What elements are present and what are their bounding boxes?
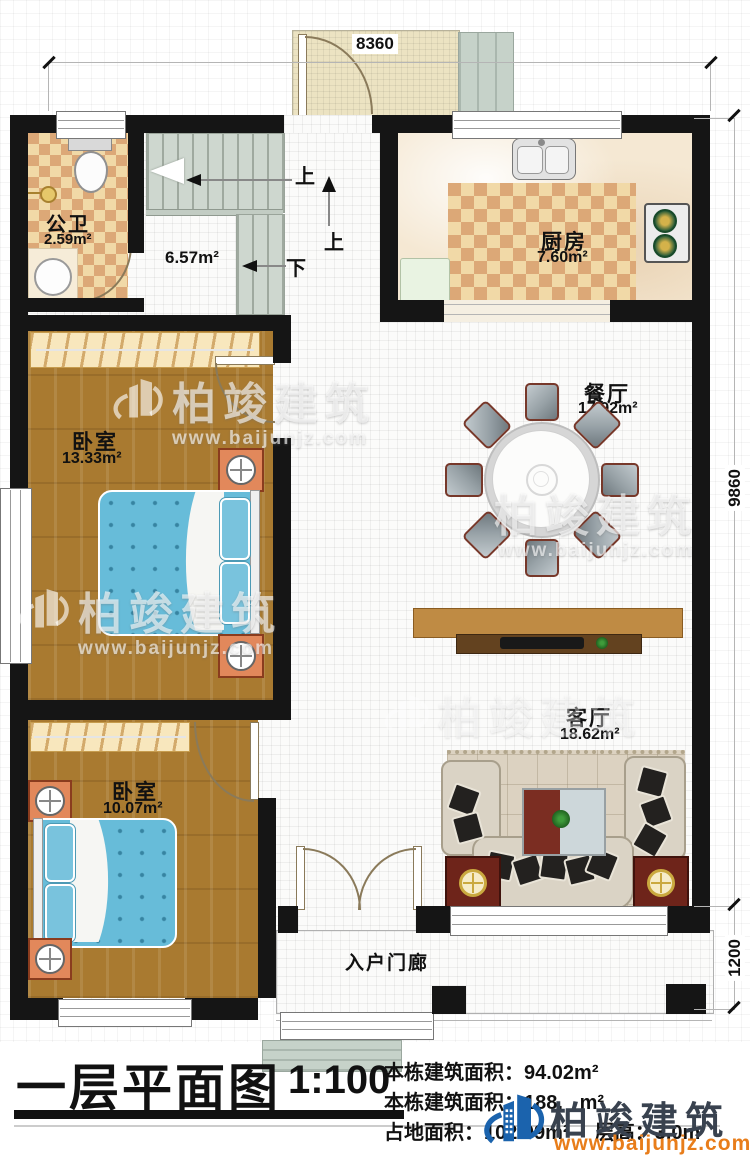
wall	[10, 700, 291, 720]
wall	[664, 906, 710, 933]
sink-basin-right	[545, 146, 569, 174]
sink-faucet	[538, 139, 545, 146]
side-table	[445, 856, 501, 910]
watermark-url: www.baijunjz.com	[172, 428, 376, 450]
wall	[28, 298, 144, 312]
kitchen-sill-line1	[444, 304, 610, 305]
title-underline	[14, 1110, 404, 1119]
pillow	[220, 498, 250, 560]
stats-value: 94.02m²	[524, 1062, 599, 1084]
wall	[258, 798, 276, 998]
watermark-brand: 柏竣建筑	[78, 578, 282, 642]
watermark-brand: 柏竣建筑	[172, 368, 376, 432]
plant-icon	[596, 637, 608, 649]
bed-headboard	[33, 818, 43, 946]
door-threshold	[284, 115, 372, 133]
watermark-url: www.baijunjz.com	[498, 540, 698, 562]
stair-up-arrowhead	[186, 174, 201, 186]
watermark: 柏竣建筑 www.baijunjz.com	[494, 480, 698, 562]
living-window	[450, 906, 668, 936]
dimension-extension	[710, 63, 711, 111]
burner-top	[653, 209, 677, 233]
plan-scale: 1:100	[288, 1058, 390, 1103]
sink-basin-left	[517, 146, 543, 174]
watermark-brand: 柏竣建筑	[438, 682, 642, 746]
stair-down-line	[256, 265, 286, 267]
stair-break-arrow	[150, 158, 184, 184]
dimension-line-top	[48, 62, 712, 63]
watermark: 柏竣建筑 www.baijunjz.com	[16, 578, 282, 660]
dim-right-label: 9860	[725, 465, 745, 511]
burner-bottom	[653, 234, 677, 258]
shower-arm	[28, 192, 42, 194]
room-area-kitchen: 7.60m²	[537, 249, 588, 267]
wall	[372, 115, 452, 133]
dining-chair	[525, 383, 559, 421]
stair-up2-label: 上	[324, 226, 346, 255]
stair-up2-arrowhead	[322, 176, 336, 192]
bathroom-window	[56, 111, 126, 139]
dim-porch-label: 1200	[725, 935, 745, 981]
kitchen-sill-line2	[444, 314, 610, 315]
watermark-logo-icon	[382, 689, 432, 739]
stair-up-line	[200, 179, 292, 181]
stair-up-label: 上	[295, 160, 317, 189]
nightstand	[28, 780, 72, 822]
porch-floor	[276, 930, 714, 1014]
watermark: 柏竣建筑 www.baijunjz.com	[110, 368, 376, 450]
terrace-steps	[458, 32, 514, 120]
room-area-bedroom1: 13.33m²	[62, 450, 122, 468]
room-area-stairhall: 6.57m²	[165, 248, 219, 268]
table-lamp-icon	[35, 786, 65, 816]
side-table	[633, 856, 689, 910]
watermark-logo-icon	[110, 372, 166, 428]
floor-lamp-icon	[647, 869, 675, 897]
pillow	[45, 884, 75, 942]
wall	[128, 133, 144, 253]
porch-column	[432, 986, 466, 1014]
bedroom2-window	[58, 999, 192, 1027]
plant-icon	[552, 810, 570, 828]
porch-steps-upper	[280, 1012, 434, 1040]
wall	[416, 906, 454, 933]
wall	[122, 115, 284, 133]
wall	[10, 115, 28, 490]
brand-logo-icon	[480, 1086, 548, 1154]
bedroom2-wardrobe	[30, 722, 190, 752]
stats-line: 本栋建筑面积：94.02m²	[384, 1058, 599, 1088]
stats-label: 本栋建筑面积：	[384, 1062, 524, 1084]
wall	[610, 300, 692, 322]
wall	[10, 998, 63, 1020]
room-label-porch: 入户门廊	[345, 948, 429, 975]
wall	[10, 315, 291, 331]
shower-head	[40, 186, 57, 203]
watermark-url: www.baijunjz.com	[78, 638, 282, 660]
nightstand	[218, 448, 264, 492]
pillow	[45, 824, 75, 882]
stair-down-arrowhead	[242, 260, 257, 272]
room-area-bedroom2: 10.07m²	[103, 800, 163, 818]
table-lamp-icon	[35, 944, 65, 974]
brand-url: www.baijunjz.com	[554, 1132, 750, 1156]
dimension-extension	[48, 63, 49, 111]
basin	[34, 258, 72, 296]
watermark: 柏竣建筑	[382, 682, 642, 746]
watermark-brand: 柏竣建筑	[494, 480, 698, 544]
kitchen-window	[452, 111, 622, 139]
dimension-line-right	[734, 118, 735, 1010]
floor-plan: 公卫 2.59m² 6.57m² 上 上 下 厨房 7.60m² 餐厅 17.9…	[0, 0, 750, 1165]
stats-label: 占地面积：	[384, 1122, 484, 1144]
wall	[273, 315, 291, 363]
watermark-logo-icon	[16, 582, 72, 638]
table-lamp-icon	[226, 455, 256, 485]
wall	[380, 300, 444, 322]
stair-down-label: 下	[286, 252, 308, 281]
wall	[273, 438, 291, 700]
dining-chair	[445, 463, 483, 497]
tv	[500, 637, 584, 649]
stair-up2-line	[328, 190, 330, 226]
floor-lamp-icon	[459, 869, 487, 897]
wall	[185, 998, 258, 1020]
dim-top-label: 8360	[352, 34, 398, 54]
nightstand	[28, 938, 72, 980]
wall	[278, 906, 298, 933]
wall	[380, 133, 398, 313]
